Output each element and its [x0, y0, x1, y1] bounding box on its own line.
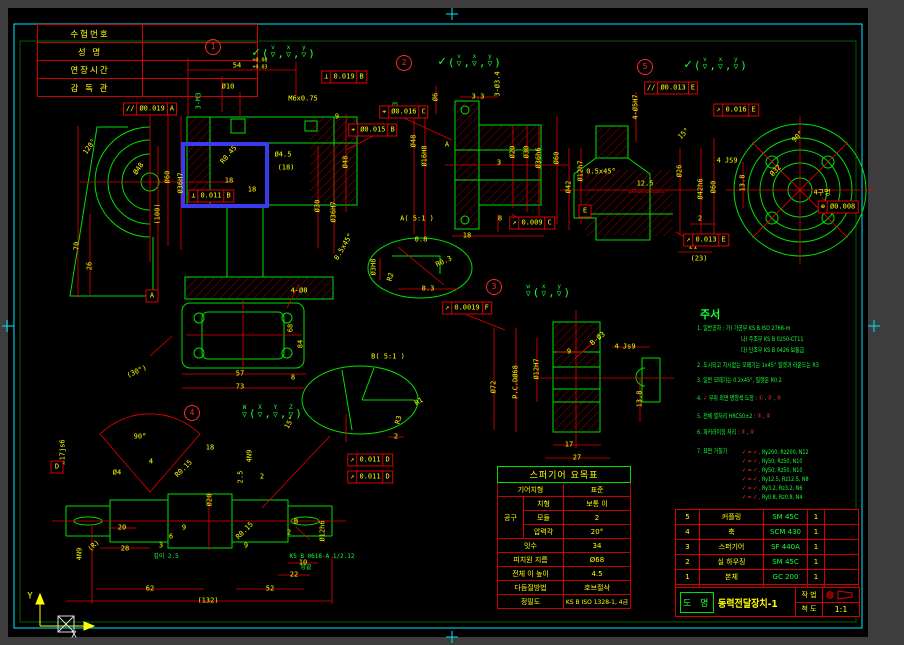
roughness-line: ✓ = ✓ , Ry200, Rz200, N12	[742, 449, 809, 456]
dim-label: 3	[497, 160, 501, 167]
dim-label: 13.8	[740, 175, 747, 192]
view-balloon-1[interactable]: 1	[205, 39, 221, 55]
tolerance-cell: ↗	[348, 455, 356, 466]
dim-label: 90°	[134, 434, 147, 441]
datum-box-D: D	[51, 461, 64, 474]
dim-label: 26	[87, 262, 94, 270]
dim-label: 6	[169, 534, 173, 541]
dim-label: 4구멍	[813, 190, 830, 197]
dim-label: X	[71, 632, 76, 641]
dim-label: Ø48	[133, 162, 146, 176]
dim-label: P.C.DØ68	[513, 365, 520, 399]
dim-label: 13.8	[637, 391, 644, 408]
dim-label: 4 Js9	[614, 344, 635, 351]
tolerance-cell: 0.016	[722, 105, 748, 116]
dim-label: (23)	[691, 256, 708, 263]
note-line: 1. 일반공차 : 가) 가공부 KS B ISO 2768-m	[697, 325, 790, 332]
tolerance-frame: ⌖Ø0.016C	[379, 106, 428, 119]
roughness-line: ✓ = ✓ , Ry3.2, Rz3.2, N6	[742, 485, 802, 492]
tolerance-cell: A	[167, 104, 176, 115]
tolerance-frame: ↗0.011D	[347, 454, 393, 467]
tolerance-cell: B	[388, 125, 397, 136]
dim-label: Ø60	[165, 171, 172, 184]
roughness-line: ✓ = ✓ , Ry50, Rz50, N10	[742, 467, 802, 474]
dim-label: 4N9	[247, 450, 254, 463]
dim-label: R0.15	[235, 521, 255, 541]
dim-label: Ø4	[113, 470, 121, 477]
dim-label: Ø72	[491, 381, 498, 394]
surface-finish-group: W▽(X▽,Y▽,Z▽)	[241, 405, 303, 419]
dim-label: 2	[698, 216, 702, 223]
dim-label: R2	[387, 272, 396, 282]
tolerance-cell: //	[645, 83, 657, 94]
surface-finish-group: ✓(v▽,x▽,y▽)	[438, 54, 502, 68]
dim-label: 22	[290, 572, 298, 579]
notes-title: 주서	[700, 306, 720, 322]
dim-label: 4	[149, 459, 153, 466]
tolerance-cell: Ø0.019	[136, 104, 166, 115]
surface-finish-group: ✓(v▽,x▽,y▽)	[684, 57, 748, 71]
dim-label: 9	[244, 543, 248, 550]
dim-label: 20	[118, 525, 126, 532]
surface-finish-group: w▽(x▽,y▽)	[525, 284, 571, 298]
dim-label: Ø42	[566, 181, 573, 194]
dim-label: Ø60	[711, 181, 718, 194]
tolerance-cell: Ø0.008	[827, 202, 857, 213]
dim-label: 양끝	[300, 565, 311, 571]
tolerance-cell: C	[545, 218, 554, 229]
tolerance-cell: D	[383, 472, 392, 483]
dim-label: Ø26	[677, 165, 684, 178]
dim-label: 4-Ø8	[291, 288, 308, 295]
tolerance-cell: E	[688, 83, 697, 94]
dim-label: B-Ø3	[589, 331, 606, 347]
datum-box-A: A	[146, 290, 159, 303]
tolerance-cell: E	[749, 105, 758, 116]
tolerance-cell: Ø0.013	[657, 83, 687, 94]
dim-label: M6x0.75	[288, 96, 318, 103]
dim-label: Ø60	[554, 152, 561, 165]
dim-label: 27	[573, 455, 581, 462]
note-line: 3. 일반 모떼기는 0.2x45°, 필렛은 R0.2	[697, 377, 782, 384]
dim-label: 52	[266, 586, 274, 593]
view-balloon-2[interactable]: 2	[396, 55, 412, 71]
view-balloon-5[interactable]: 5	[637, 59, 653, 75]
dim-label: Ø48	[343, 156, 350, 169]
dim-label: 3.3	[472, 94, 485, 101]
dim-label: A( 5:1 )	[400, 216, 434, 223]
dim-label: Ø48	[411, 135, 418, 148]
tolerance-cell: B	[224, 191, 233, 202]
roughness-line: ✓ = ✓ , Ry0.8, Rz0.8, N4	[742, 494, 802, 501]
dim-label: 9	[335, 114, 339, 121]
dim-label: 4N9	[77, 548, 84, 561]
dim-label: Ø30	[524, 146, 531, 159]
dim-label: Ø20	[207, 494, 214, 507]
dim-label: A	[445, 142, 449, 149]
dim-label: +0.03	[252, 66, 267, 71]
dim-label: 17	[565, 442, 573, 449]
dim-label: Ø36H7	[178, 172, 185, 193]
dim-label: (30°)	[126, 364, 148, 379]
dim-label: 2	[287, 530, 291, 537]
tolerance-frame: ⊥0.011B	[188, 190, 234, 203]
dim-label: (R)	[87, 539, 101, 553]
dim-label: Ø4.5	[275, 152, 292, 159]
dim-label: 3-M3	[196, 93, 203, 110]
dim-label: Ø12h6	[320, 520, 327, 541]
tolerance-frame: ⊥0.019B	[321, 71, 367, 84]
dim-label: Ø12H7	[534, 358, 541, 379]
tolerance-cell: 0.0019	[451, 303, 481, 314]
dim-label: Ø20	[510, 146, 517, 159]
dim-label: Ø12h7	[578, 160, 585, 181]
tolerance-cell: 0.009	[518, 218, 544, 229]
roughness-line: ✓ = ✓ , Ry50, Rz50, N10	[742, 458, 802, 465]
dim-label: 4 JS9	[716, 158, 737, 165]
note-line: 5. 전체 열처리 HRC50±2 : ③ , ④	[697, 413, 770, 420]
dim-label: 2	[260, 474, 264, 481]
note-line: 다) 단조부 KS B 0426 보통급	[741, 347, 804, 354]
dim-label: 9	[567, 349, 571, 356]
tolerance-cell: ⊥	[322, 72, 330, 83]
tolerance-cell: 0.011	[197, 191, 223, 202]
note-line: 2. 도시되고 지시없는 모떼기는 1x45° 필렛과 라운드는 R3	[697, 362, 819, 369]
tolerance-cell: 0.019	[330, 72, 356, 83]
tolerance-cell: E	[719, 235, 728, 246]
note-line: 나) 주조부 KS B 0250-CT11	[741, 336, 803, 343]
dim-label: 깊이 2.5	[153, 554, 179, 560]
tolerance-frame: //Ø0.013E	[644, 82, 698, 95]
tolerance-frame: //Ø0.019A	[123, 103, 177, 116]
surface-finish-group: ✓(v▽,x▽,y▽)	[252, 45, 316, 59]
tolerance-frame: ⊕Ø0.008	[818, 201, 859, 214]
dim-label: Ø10	[222, 84, 235, 91]
tolerance-cell: B	[357, 72, 366, 83]
dim-label: 2	[394, 434, 398, 441]
dim-label: Ø16H8	[422, 145, 429, 166]
tolerance-frame: ↗0.011D	[347, 471, 393, 484]
tolerance-frame: ↗0.013E	[683, 234, 729, 247]
dim-label: Ø3H8	[371, 259, 378, 276]
dim-label: 8	[498, 216, 502, 223]
dim-label: 18	[225, 178, 233, 185]
note-line: 6. 파커라이징 처리 : ③ , ④	[697, 429, 754, 436]
dim-label: Ø36H7	[331, 201, 338, 222]
dim-label: 90°	[791, 130, 805, 144]
dim-label: 3-Ø3.4	[495, 71, 502, 96]
dim-label: 73	[236, 384, 244, 391]
dim-label: 28	[121, 546, 129, 553]
tolerance-cell: ↗	[443, 303, 451, 314]
dim-label: 9	[182, 525, 186, 532]
dim-label: (18)	[278, 165, 295, 172]
datum-box-E: E	[579, 205, 592, 218]
dim-label: B( 5:1 )	[371, 354, 405, 361]
dim-label: 3	[159, 543, 163, 550]
dim-label: 18	[248, 187, 256, 194]
note-line: 7. 표면 거칠기	[697, 448, 727, 455]
tolerance-cell: 0.011	[356, 455, 382, 466]
dim-label: (132)	[197, 598, 218, 605]
tolerance-cell: //	[124, 104, 136, 115]
dim-label: Ø30	[315, 200, 322, 213]
dim-label: 0.5x45°	[334, 232, 355, 261]
tolerance-cell: ↗	[510, 218, 518, 229]
tolerance-cell: ⊕	[819, 202, 827, 213]
view-balloon-4[interactable]: 4	[184, 405, 200, 421]
tolerance-cell: 0.011	[356, 472, 382, 483]
dim-label: 12.5	[637, 181, 654, 188]
dim-label: KS B 0618-A 1/2.12	[289, 554, 354, 560]
dim-label: 120°	[82, 138, 97, 156]
tolerance-cell: ↗	[714, 105, 722, 116]
dim-label: B	[294, 519, 298, 526]
tolerance-cell: D	[383, 455, 392, 466]
dim-label: R3	[395, 415, 404, 425]
dim-label: 18	[206, 445, 214, 452]
tolerance-frame: ⌖Ø0.015B	[348, 124, 397, 137]
dim-label: 8.3	[422, 286, 435, 293]
dim-label: 15°	[677, 127, 691, 141]
tolerance-cell: Ø0.016	[388, 107, 418, 118]
tolerance-cell: ⌖	[380, 107, 388, 118]
dim-label: Ø32	[769, 164, 783, 178]
dim-label: 57	[236, 371, 244, 378]
dim-label: R0.3	[435, 255, 453, 268]
dim-label: Ø42h6	[698, 178, 705, 199]
dim-label: 18	[463, 233, 471, 240]
view-balloon-3[interactable]: 3	[486, 279, 502, 295]
roughness-line: ✓ = ✓ , Ry12.5, Rz12.5, N8	[742, 476, 809, 483]
dim-label: 84	[298, 340, 305, 348]
dim-label: 4-Ø5H7	[633, 94, 640, 119]
dim-label: Ø6	[433, 93, 440, 101]
tolerance-cell: ⌖	[349, 125, 357, 136]
tolerance-frame: ↗0.009C	[509, 217, 555, 230]
tolerance-cell: ⊥	[189, 191, 197, 202]
tolerance-cell: ↗	[348, 472, 356, 483]
dim-label: R0.45	[220, 145, 239, 166]
dim-label: 54	[233, 63, 241, 70]
tolerance-frame: ↗0.016E	[713, 104, 759, 117]
dim-label: (100)	[155, 203, 162, 224]
tolerance-cell: ↗	[684, 235, 692, 246]
tolerance-cell: C	[419, 107, 428, 118]
cad-application-window: 수험번호성 명연장시간감 독 관 스퍼기어 요목표 기어치형 표준 공구 치형 …	[0, 0, 904, 645]
tolerance-cell: Ø0.015	[357, 125, 387, 136]
dim-label: 62	[146, 586, 154, 593]
annotation-layer: 54+0.08+0.03Ø10M6x0.7593-M3M3120°Ø48Ø60Ø…	[0, 0, 904, 645]
dim-label: 8	[291, 375, 295, 382]
dim-label: 2.5	[238, 471, 245, 484]
dim-label: R1	[414, 397, 425, 407]
dim-label: 70	[74, 242, 81, 250]
tolerance-cell: F	[482, 303, 491, 314]
dim-label: Y	[27, 593, 32, 602]
tolerance-frame: ↗0.0019F	[442, 302, 492, 315]
tolerance-cell: 0.013	[692, 235, 718, 246]
dim-label: Ø36h6	[536, 147, 543, 168]
dim-label: 0.5x45°	[586, 169, 616, 176]
dim-label: 0.8	[415, 237, 428, 244]
dim-label: R0.15	[174, 459, 194, 479]
note-line: 4. ✓ 부위 외면 명청색 도장 : ① , ② , ③	[697, 395, 781, 402]
dim-label: 68	[288, 324, 295, 332]
